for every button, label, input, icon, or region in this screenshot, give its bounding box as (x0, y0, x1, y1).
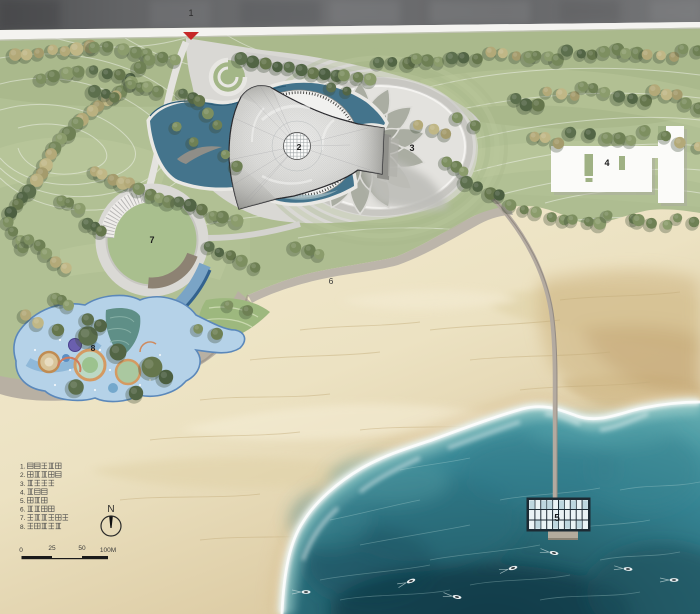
svg-text:7.: 7. (20, 515, 26, 522)
svg-text:50: 50 (78, 545, 86, 552)
svg-text:6: 6 (329, 276, 334, 286)
svg-text:3.: 3. (20, 481, 26, 488)
svg-text:2: 2 (297, 142, 302, 152)
svg-text:4: 4 (604, 158, 609, 168)
svg-text:4.: 4. (20, 489, 26, 496)
svg-text:5: 5 (554, 513, 560, 524)
svg-text:7: 7 (149, 235, 154, 245)
svg-text:1.: 1. (20, 464, 26, 471)
svg-text:5.: 5. (20, 498, 26, 505)
svg-text:100M: 100M (100, 547, 116, 554)
svg-text:N: N (107, 504, 114, 515)
svg-text:1: 1 (188, 8, 193, 18)
svg-text:6.: 6. (20, 507, 26, 514)
svg-text:8.: 8. (20, 524, 26, 531)
svg-text:2.: 2. (20, 472, 26, 479)
svg-text:8: 8 (91, 343, 96, 353)
svg-text:0: 0 (19, 547, 23, 554)
svg-text:3: 3 (409, 143, 414, 153)
svg-text:25: 25 (48, 545, 56, 552)
